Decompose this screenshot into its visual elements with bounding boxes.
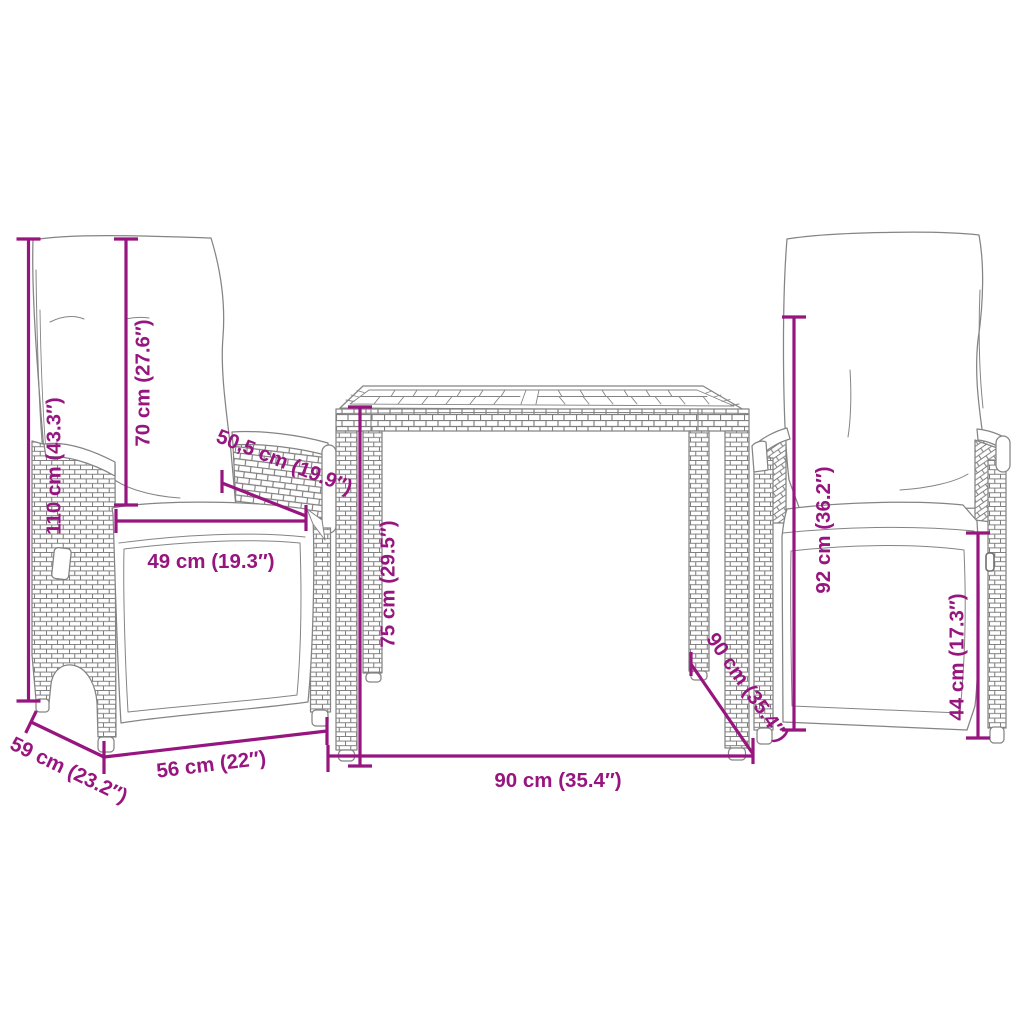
- svg-text:70 cm (27.6″): 70 cm (27.6″): [132, 319, 155, 446]
- svg-text:110 cm (43.3″): 110 cm (43.3″): [43, 397, 66, 534]
- svg-text:75 cm (29.5″): 75 cm (29.5″): [377, 520, 400, 647]
- svg-text:92 cm (36.2″): 92 cm (36.2″): [812, 466, 835, 593]
- svg-text:44 cm (17.3″): 44 cm (17.3″): [946, 593, 969, 720]
- svg-text:90 cm (35.4″): 90 cm (35.4″): [494, 769, 621, 792]
- svg-text:49 cm (19.3″): 49 cm (19.3″): [147, 550, 274, 573]
